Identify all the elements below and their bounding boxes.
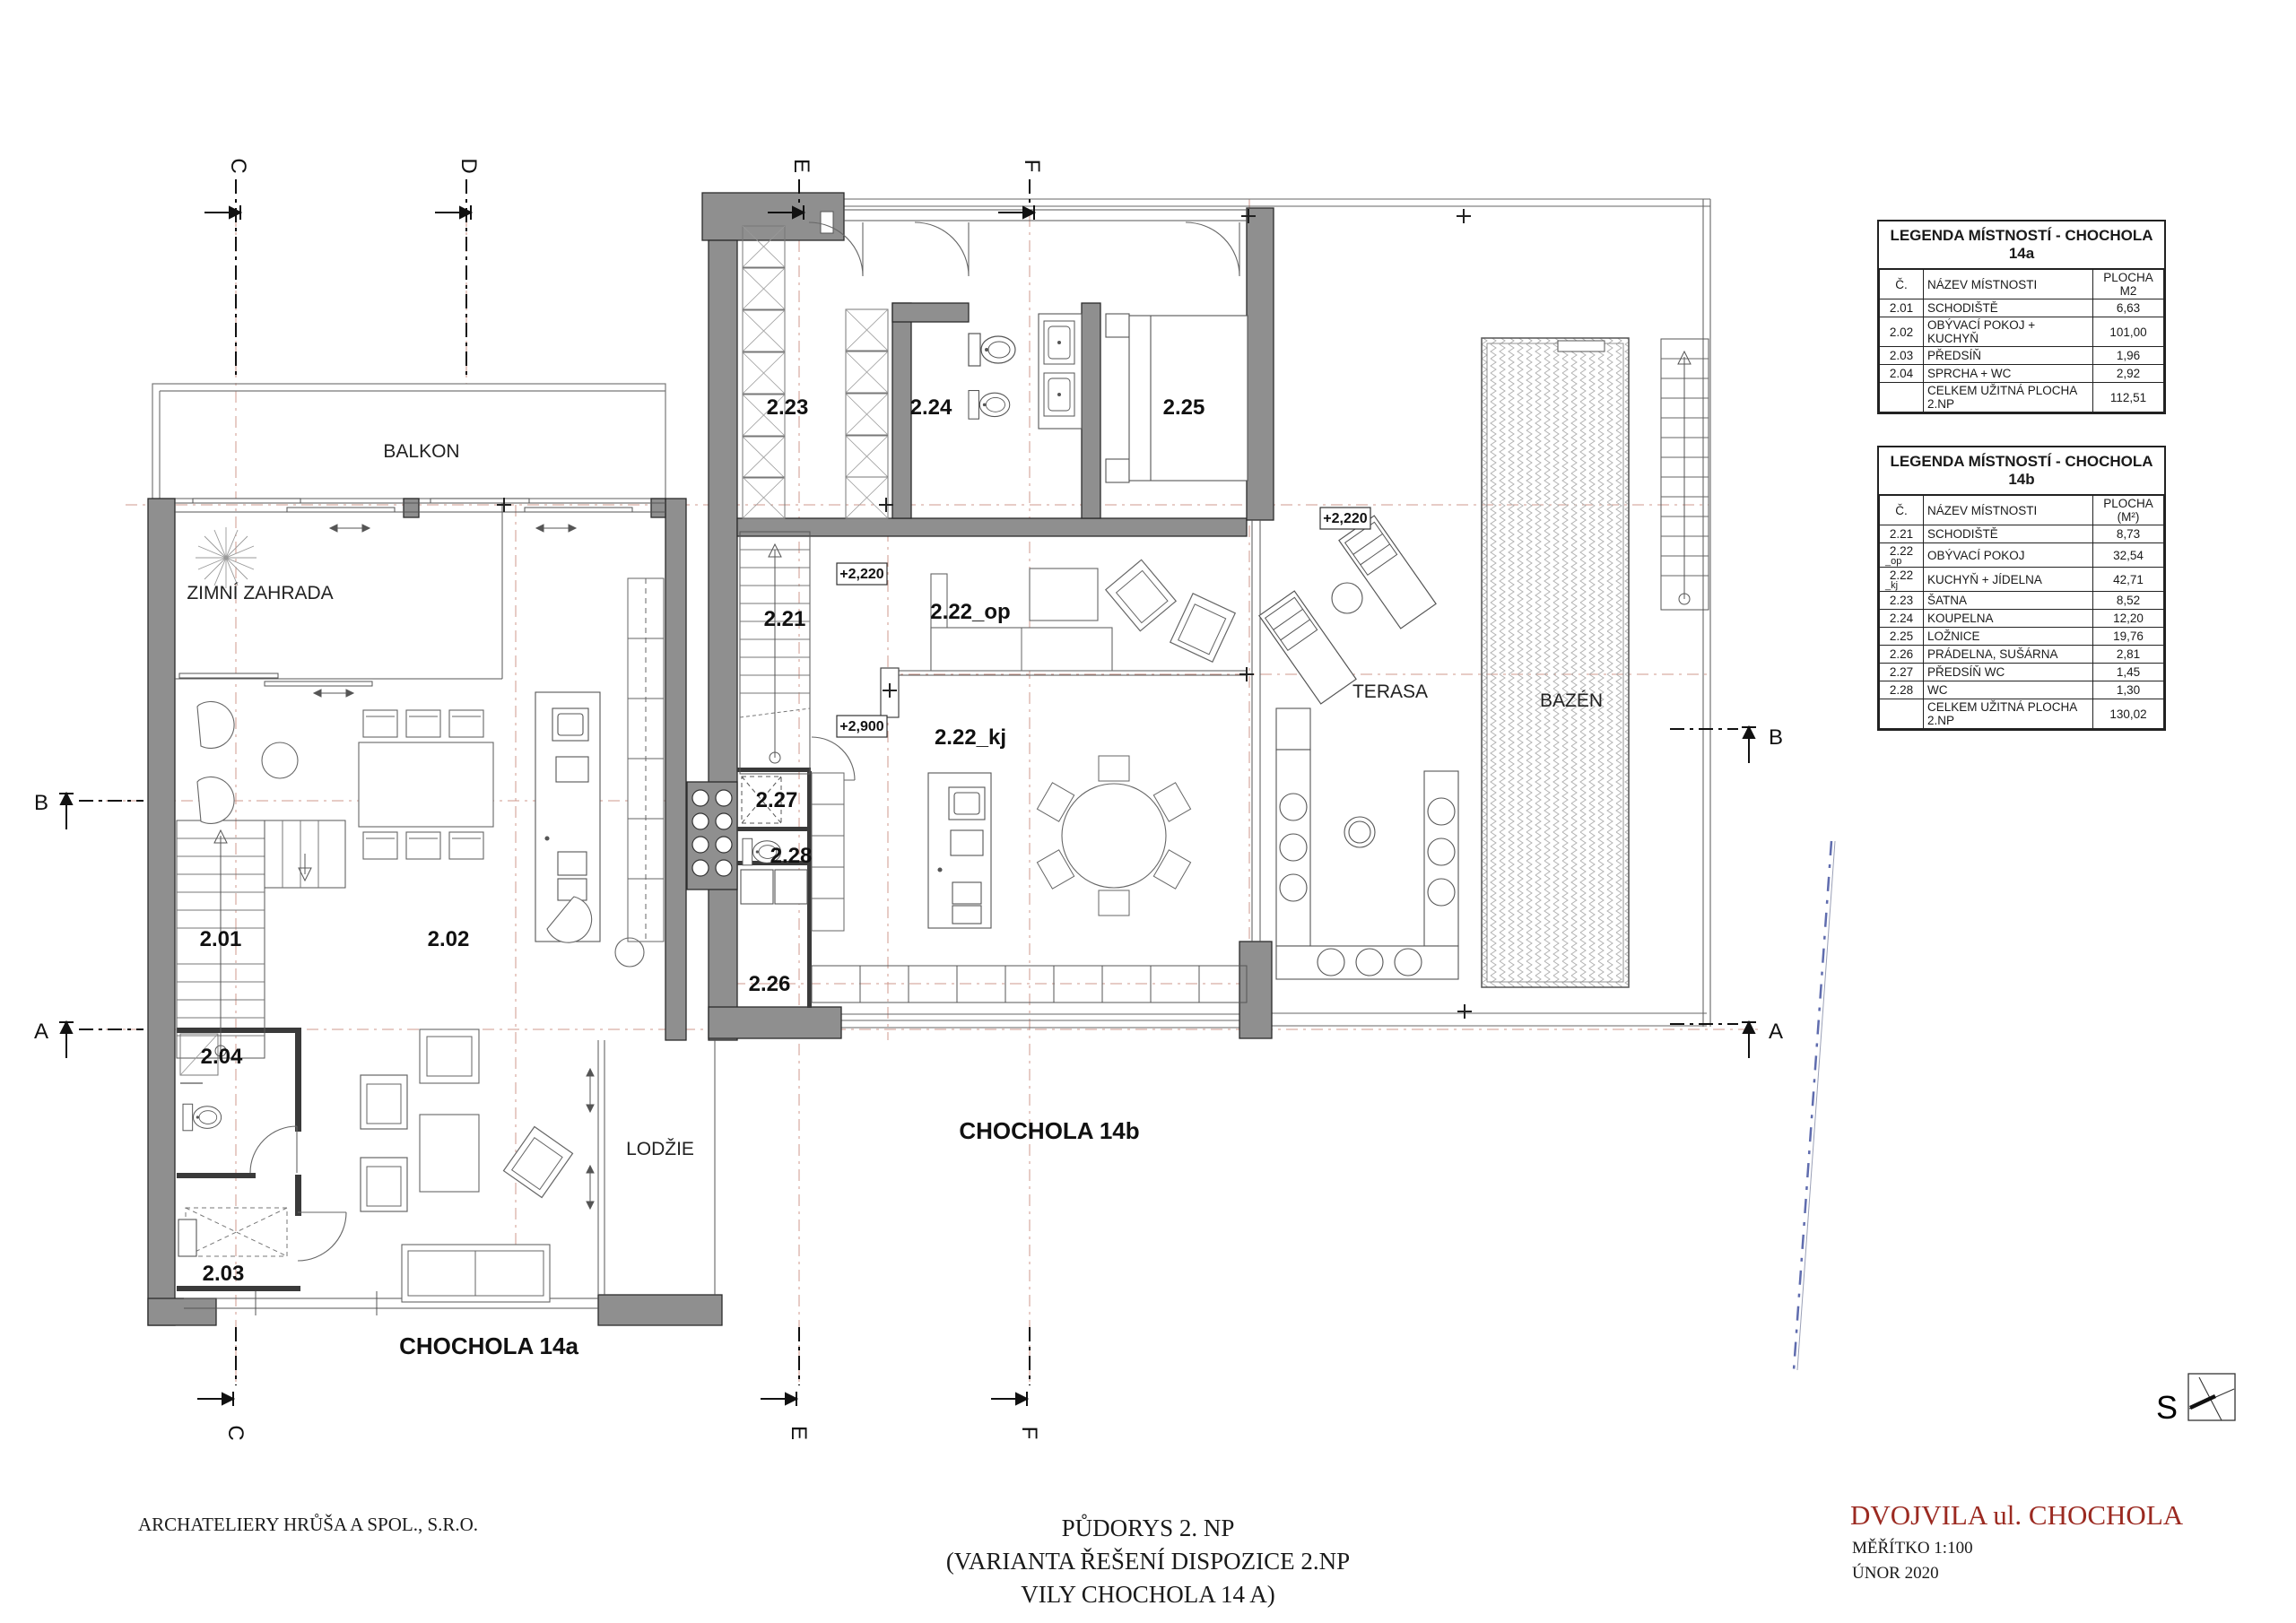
north-label: S bbox=[2156, 1389, 2178, 1426]
drawing-date: ÚNOR 2020 bbox=[1852, 1564, 1939, 1584]
closets-223 bbox=[743, 226, 888, 518]
legend-row: 2.24KOUPELNA12,20 bbox=[1880, 610, 2164, 628]
legend-row: 2.22_opOBÝVACÍ POKOJ32,54 bbox=[1880, 543, 2164, 568]
project-title: DVOJVILA ul. CHOCHOLA bbox=[1850, 1499, 2183, 1532]
legend-b-total-row: CELKEM UŽITNÁ PLOCHA 2.NP 130,02 bbox=[1880, 699, 2164, 729]
legend-row: 2.23ŠATNA8,52 bbox=[1880, 592, 2164, 610]
label-223: 2.23 bbox=[767, 395, 809, 420]
legend-b-col-name: NÁZEV MÍSTNOSTI bbox=[1924, 496, 2093, 525]
label-221: 2.21 bbox=[764, 607, 806, 631]
label-226: 2.26 bbox=[749, 972, 791, 996]
legend-a-title: LEGENDA MÍSTNOSTÍ - CHOCHOLA 14a bbox=[1879, 221, 2164, 269]
legend-table-14b: LEGENDA MÍSTNOSTÍ - CHOCHOLA 14b Č. NÁZE… bbox=[1877, 446, 2166, 731]
architect-name: ARCHATELIERY HRŮŠA A SPOL., S.R.O. bbox=[138, 1514, 478, 1536]
section-letter-e-bottom: E bbox=[787, 1426, 811, 1440]
dining-set-14a bbox=[359, 710, 493, 859]
section-letter-c-bottom: C bbox=[223, 1425, 248, 1440]
legend-b-title: LEGENDA MÍSTNOSTÍ - CHOCHOLA 14b bbox=[1879, 447, 2164, 495]
label-chochola-14a: CHOCHOLA 14a bbox=[399, 1332, 578, 1359]
label-bazen: BAZÉN bbox=[1540, 690, 1603, 711]
legend-b-col-num: Č. bbox=[1880, 496, 1924, 525]
legend-row: 2.03PŘEDSÍŇ1,96 bbox=[1880, 347, 2164, 365]
legend-table-14a: LEGENDA MÍSTNOSTÍ - CHOCHOLA 14a Č. NÁZE… bbox=[1877, 220, 2166, 414]
label-222kj: 2.22_kj bbox=[935, 725, 1006, 750]
legend-a-col-name: NÁZEV MÍSTNOSTI bbox=[1924, 270, 2093, 299]
north-arrow-icon bbox=[2188, 1374, 2235, 1420]
hall-203 bbox=[178, 1208, 287, 1256]
section-letter-a-left: A bbox=[34, 1020, 48, 1044]
stair-exterior bbox=[1661, 339, 1709, 610]
label-chochola-14b: CHOCHOLA 14b bbox=[959, 1117, 1139, 1144]
terrace-bar bbox=[1276, 708, 1458, 979]
laundry-226 bbox=[741, 870, 807, 904]
label-terasa: TERASA bbox=[1352, 681, 1428, 702]
label-225: 2.25 bbox=[1163, 395, 1205, 420]
cabinet-strip-service bbox=[812, 773, 844, 931]
legend-row: 2.02OBÝVACÍ POKOJ + KUCHYŇ101,00 bbox=[1880, 317, 2164, 347]
legend-row: 2.01SCHODIŠTĚ6,63 bbox=[1880, 299, 2164, 317]
elevation-kj: +2,900 bbox=[839, 719, 883, 734]
legend-a-total-row: CELKEM UŽITNÁ PLOCHA 2.NP 112,51 bbox=[1880, 383, 2164, 412]
legend-row: 2.21SCHODIŠTĚ8,73 bbox=[1880, 525, 2164, 543]
legend-row: 2.27PŘEDSÍŇ WC1,45 bbox=[1880, 664, 2164, 681]
label-203: 2.03 bbox=[203, 1262, 245, 1286]
sofa-group-14a bbox=[361, 897, 644, 1302]
label-222op: 2.22_op bbox=[930, 600, 1010, 624]
drawing-scale: MĚŘÍTKO 1:100 bbox=[1852, 1539, 1973, 1558]
legend-row: 2.04SPRCHA + WC2,92 bbox=[1880, 365, 2164, 383]
label-202: 2.02 bbox=[428, 927, 470, 951]
section-letter-b-left: B bbox=[34, 791, 48, 815]
section-letter-f-bottom: F bbox=[1017, 1427, 1041, 1440]
legend-b-col-area: PLOCHA(M²) bbox=[2093, 496, 2164, 525]
drawing-title-line1: PŮDORYS 2. NP bbox=[888, 1512, 1408, 1545]
entry-block-window bbox=[821, 212, 833, 233]
legend-a-col-num: Č. bbox=[1880, 270, 1924, 299]
elevation-terasa: +2,220 bbox=[1323, 511, 1367, 526]
terrace-lounges bbox=[1259, 516, 1436, 704]
section-letter-c-top: C bbox=[226, 158, 250, 173]
label-227: 2.27 bbox=[756, 788, 798, 812]
tall-cabinet-14a bbox=[628, 578, 664, 942]
label-lodzie: LODŽIE bbox=[626, 1139, 694, 1159]
plant-icon bbox=[196, 527, 257, 588]
property-boundary-line bbox=[1794, 841, 1835, 1370]
label-201: 2.01 bbox=[200, 927, 242, 951]
section-letter-e-top: E bbox=[789, 159, 813, 173]
winter-garden-chairs bbox=[197, 701, 298, 823]
section-letter-b-right: B bbox=[1769, 725, 1783, 750]
section-letter-f-top: F bbox=[1020, 160, 1044, 173]
label-228: 2.28 bbox=[770, 844, 813, 868]
legend-a-col-area: PLOCHAM2 bbox=[2093, 270, 2164, 299]
legend-row: 2.28WC1,30 bbox=[1880, 681, 2164, 699]
bathroom-224 bbox=[969, 314, 1082, 429]
legend-row: 2.22_kjKUCHYŇ + JÍDELNA42,71 bbox=[1880, 568, 2164, 592]
drawing-sheet: C D E F C E F B A B A S +2,220 +2,220 +2… bbox=[0, 0, 2296, 1623]
dining-round-14b bbox=[1037, 756, 1190, 916]
legend-row: 2.26PRÁDELNA, SUŠÁRNA2,81 bbox=[1880, 646, 2164, 664]
drawing-title-line3: VILY CHOCHOLA 14 A) bbox=[888, 1578, 1408, 1611]
elevation-op: +2,220 bbox=[839, 567, 883, 582]
label-balkon: BALKON bbox=[383, 441, 459, 462]
drawing-title: PŮDORYS 2. NP (VARIANTA ŘEŠENÍ DISPOZICE… bbox=[888, 1512, 1408, 1611]
legend-row: 2.25LOŽNICE19,76 bbox=[1880, 628, 2164, 646]
label-zimni-zahrada: ZIMNÍ ZAHRADA bbox=[187, 583, 333, 603]
label-204: 2.04 bbox=[201, 1045, 243, 1069]
kitchen-island-14b bbox=[928, 773, 991, 928]
drawing-title-line2: (VARIANTA ŘEŠENÍ DISPOZICE 2.NP bbox=[888, 1545, 1408, 1578]
section-letter-d-top: D bbox=[457, 158, 481, 173]
section-letter-a-right: A bbox=[1769, 1020, 1783, 1044]
pool bbox=[1482, 338, 1629, 987]
label-224: 2.24 bbox=[910, 395, 952, 420]
